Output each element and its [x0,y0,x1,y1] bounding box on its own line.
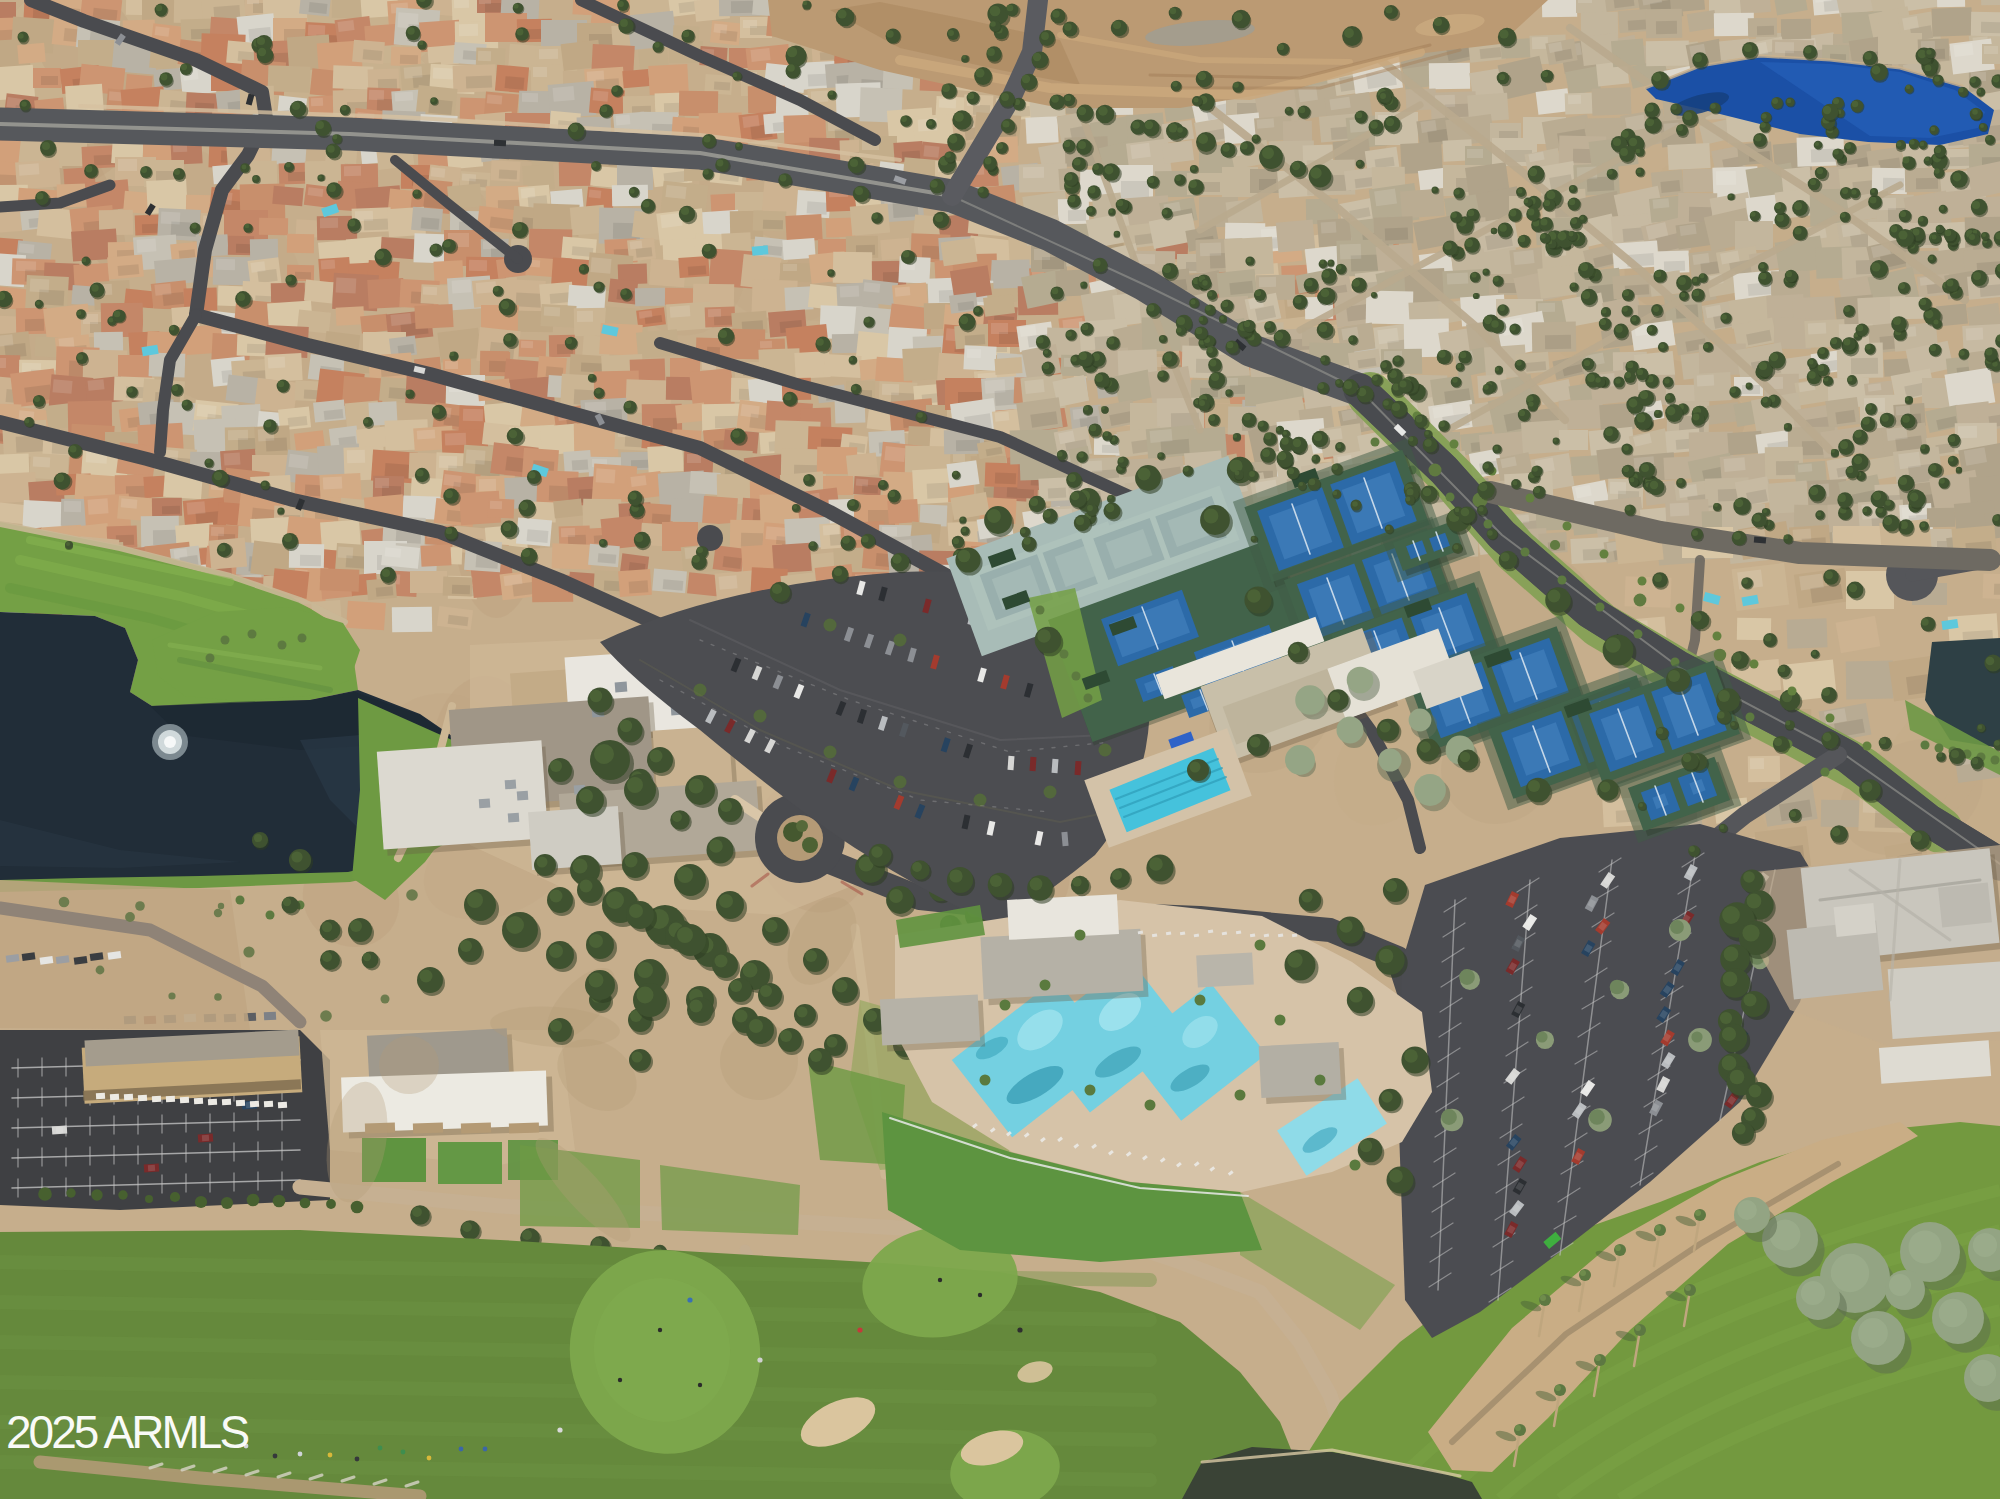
svg-text:2025 ARMLS: 2025 ARMLS [6,1406,248,1458]
